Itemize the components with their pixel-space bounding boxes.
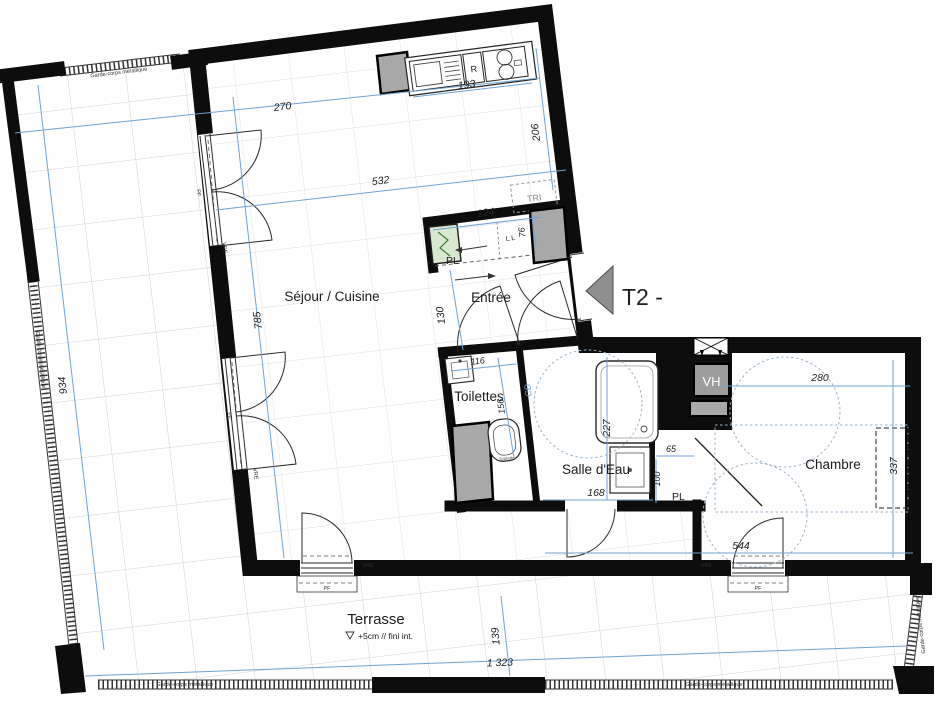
room-label-chambre: Chambre — [805, 457, 861, 472]
window-label-vre-sejour: VRE — [362, 563, 374, 569]
dim-terrace-west-length: 934 — [56, 376, 70, 395]
dim-terrace-south-length: 1 323 — [487, 657, 514, 670]
railing-label-bottom-right: Garde-corps métallique — [685, 682, 742, 688]
dim-vanity-width: 65 — [666, 444, 677, 454]
toilettes-duct — [452, 422, 493, 503]
window-label-vre-west2: VRE — [251, 468, 258, 480]
railing-label-bottom-left: Garde-corps métallique — [156, 682, 213, 688]
window-label-pf-chambre: PF — [754, 586, 762, 592]
terrasse-note-text: +5cm // fini int. — [358, 631, 413, 641]
window-label-pf-west2: PF — [226, 412, 233, 420]
closet-label-entree: PL — [446, 255, 459, 267]
room-label-salle-eau: Salle d'Eau — [562, 462, 630, 477]
window-label-pf-west1: PF — [195, 189, 202, 197]
dim-terrace-south-depth: 139 — [489, 627, 502, 645]
dim-closet-width: 124 — [476, 206, 495, 220]
closet-marks-label: L L — [505, 235, 515, 243]
dim-kitchen-counter: 193 — [457, 78, 476, 92]
dim-entree-depth: 130 — [434, 306, 448, 325]
terrace-wall-bottom-middle — [372, 677, 545, 693]
room-label-entree: Entrée — [471, 290, 511, 305]
window-label-vre-chambre: VRE — [701, 563, 713, 569]
floor-plan-canvas: VH — [0, 0, 940, 705]
terrace-corner-southeast — [893, 666, 934, 694]
cd-label: CD — [522, 383, 534, 398]
room-label-terrasse: Terrasse — [347, 611, 405, 628]
dim-terrace-width: 270 — [272, 100, 292, 114]
tri-label: TRI — [526, 192, 542, 204]
t2-title: T2 - — [622, 284, 663, 310]
room-label-sejour: Séjour / Cuisine — [284, 289, 379, 304]
window-label-pf-sejour: PF — [323, 586, 331, 592]
vh-label: VH — [702, 374, 720, 389]
dim-toilettes-width: 116 — [470, 355, 485, 367]
dim-chambre-width: 280 — [810, 372, 829, 384]
vent-hatch-icon — [694, 338, 728, 356]
entree-duct — [530, 207, 568, 263]
dim-closet-gap: 76 — [516, 227, 527, 238]
sink-basin — [414, 62, 443, 87]
window-label-vre-west1: VRE — [220, 242, 227, 254]
dim-kitchen-depth: 206 — [529, 123, 543, 143]
dim-salle-eau-depth: 227 — [601, 418, 613, 438]
dim-vanity-depth: 100 — [652, 471, 662, 486]
dim-salle-eau-width: 168 — [587, 487, 605, 499]
closet-label-chambre: PL — [672, 491, 685, 503]
room-label-toilettes: Toilettes — [454, 389, 504, 404]
vh-duct-stack: VH — [656, 338, 732, 430]
terrace-wall-top-left — [2, 69, 58, 76]
dim-sejour-width: 532 — [371, 174, 390, 188]
dim-chambre-total: 544 — [732, 540, 750, 552]
dim-sejour-length: 785 — [251, 311, 265, 330]
dim-chambre-depth: 337 — [888, 456, 900, 475]
